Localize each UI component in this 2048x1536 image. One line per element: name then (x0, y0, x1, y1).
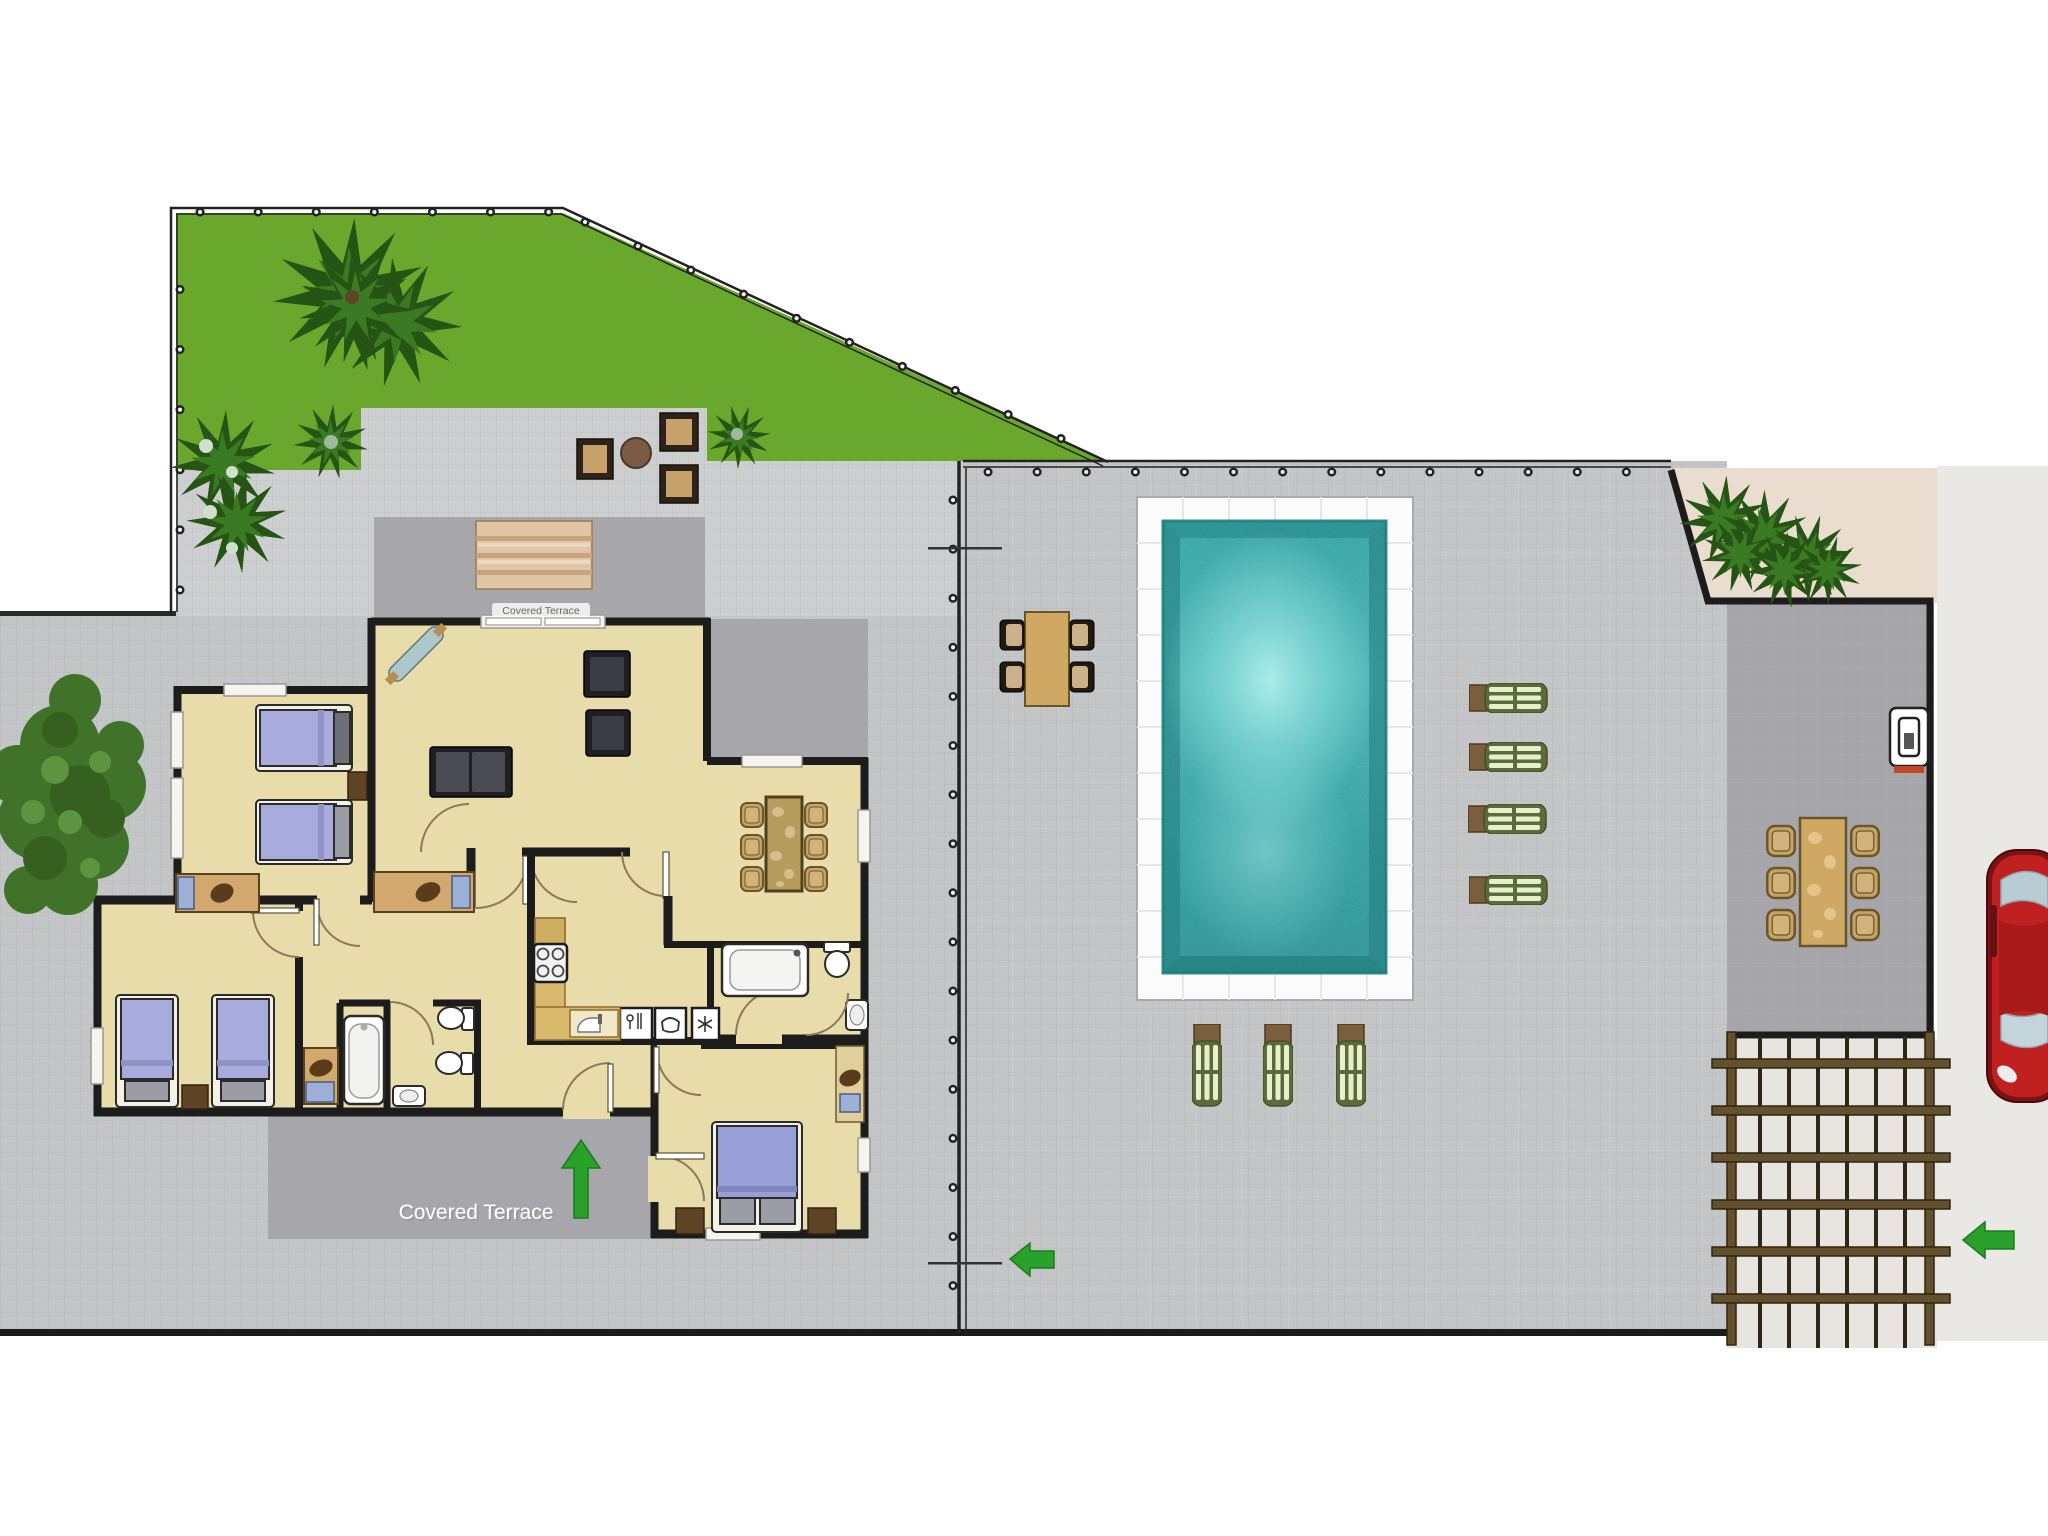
svg-text:Covered Terrace: Covered Terrace (399, 1201, 554, 1224)
svg-text:Covered Terrace: Covered Terrace (502, 605, 580, 617)
